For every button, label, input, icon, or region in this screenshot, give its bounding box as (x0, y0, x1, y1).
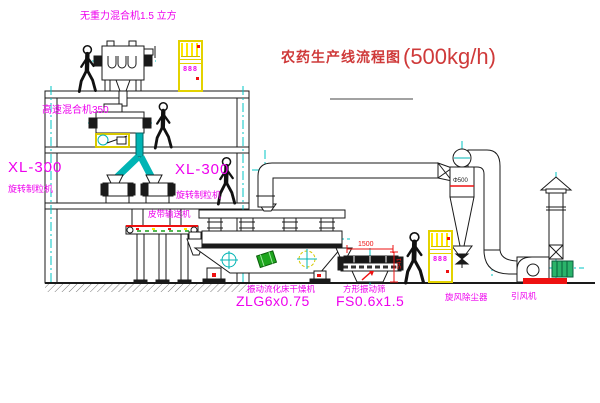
indicator-light (196, 77, 199, 80)
cyclone-cone (450, 197, 474, 246)
diagram-title: 农药生产线流程图 (500kg/h) (281, 44, 496, 70)
granulator-right (141, 175, 175, 203)
label-fan: 引风机 (511, 292, 537, 301)
induced-draft-fan (517, 257, 573, 284)
indicator-light (197, 45, 200, 48)
label-sieve-model: FS0.6x1.5 (336, 294, 404, 308)
person-figure (79, 46, 95, 92)
floor-slab-top (45, 91, 249, 98)
exhaust-stack (541, 177, 571, 259)
label-dryer-model: ZLG6x0.75 (236, 294, 310, 308)
label-granulator-right-name: 旋转制粒机 (176, 191, 221, 200)
title-text: 农药生产线流程图 (281, 47, 401, 67)
person-figure (155, 103, 171, 148)
label-granulator-left-model: XL-300 (8, 160, 62, 175)
label-granulator-right-model: XL-300 (175, 162, 229, 177)
dimension-sieve-height: 541 (396, 258, 403, 269)
square-vibrating-sieve (338, 256, 403, 282)
label-belt-conveyor: 皮带输送机 (148, 210, 191, 219)
title-capacity: (500kg/h) (403, 44, 496, 70)
label-zero-gravity-mixer: 无重力混合机1.5 立方 (80, 12, 177, 22)
cyclone-spec-text: Φ500 (453, 178, 468, 184)
cabinet-display: 888 (180, 66, 201, 73)
indicator-light (446, 270, 449, 273)
cabinet-display: 888 (430, 256, 451, 263)
indicator-light (447, 237, 450, 240)
fluid-bed-dryer (195, 204, 352, 283)
floor-slab-mid (45, 147, 249, 153)
flow-diagram-canvas: 888 888 农药生产线流程图 (500kg/h) 无重力混合机1.5 立方 … (0, 0, 600, 403)
granulator-left (101, 175, 135, 203)
mixer-discharge-pipe (136, 133, 143, 157)
label-granulator-left-name: 旋转制粒机 (8, 185, 53, 194)
dimension-sieve-length: 1500 (358, 241, 374, 248)
label-cyclone: 旋风除尘器 (445, 293, 488, 302)
cyclone-separator (450, 149, 474, 268)
downpipe-left (132, 209, 143, 226)
fan-inlet-elbow (484, 250, 519, 274)
belt-conveyor (126, 226, 205, 283)
duct-riser-elbow (258, 163, 438, 207)
control-cabinet-right: 888 (428, 230, 453, 283)
control-cabinet-top: 888 (178, 40, 203, 92)
label-high-speed-mixer: 高速混合机350 (42, 106, 109, 116)
fan-base (523, 278, 567, 284)
dryer-exhaust-stubs (207, 218, 335, 231)
ground-hatch (45, 284, 253, 292)
person-figure (406, 233, 424, 283)
cabinet-vents (431, 233, 450, 247)
